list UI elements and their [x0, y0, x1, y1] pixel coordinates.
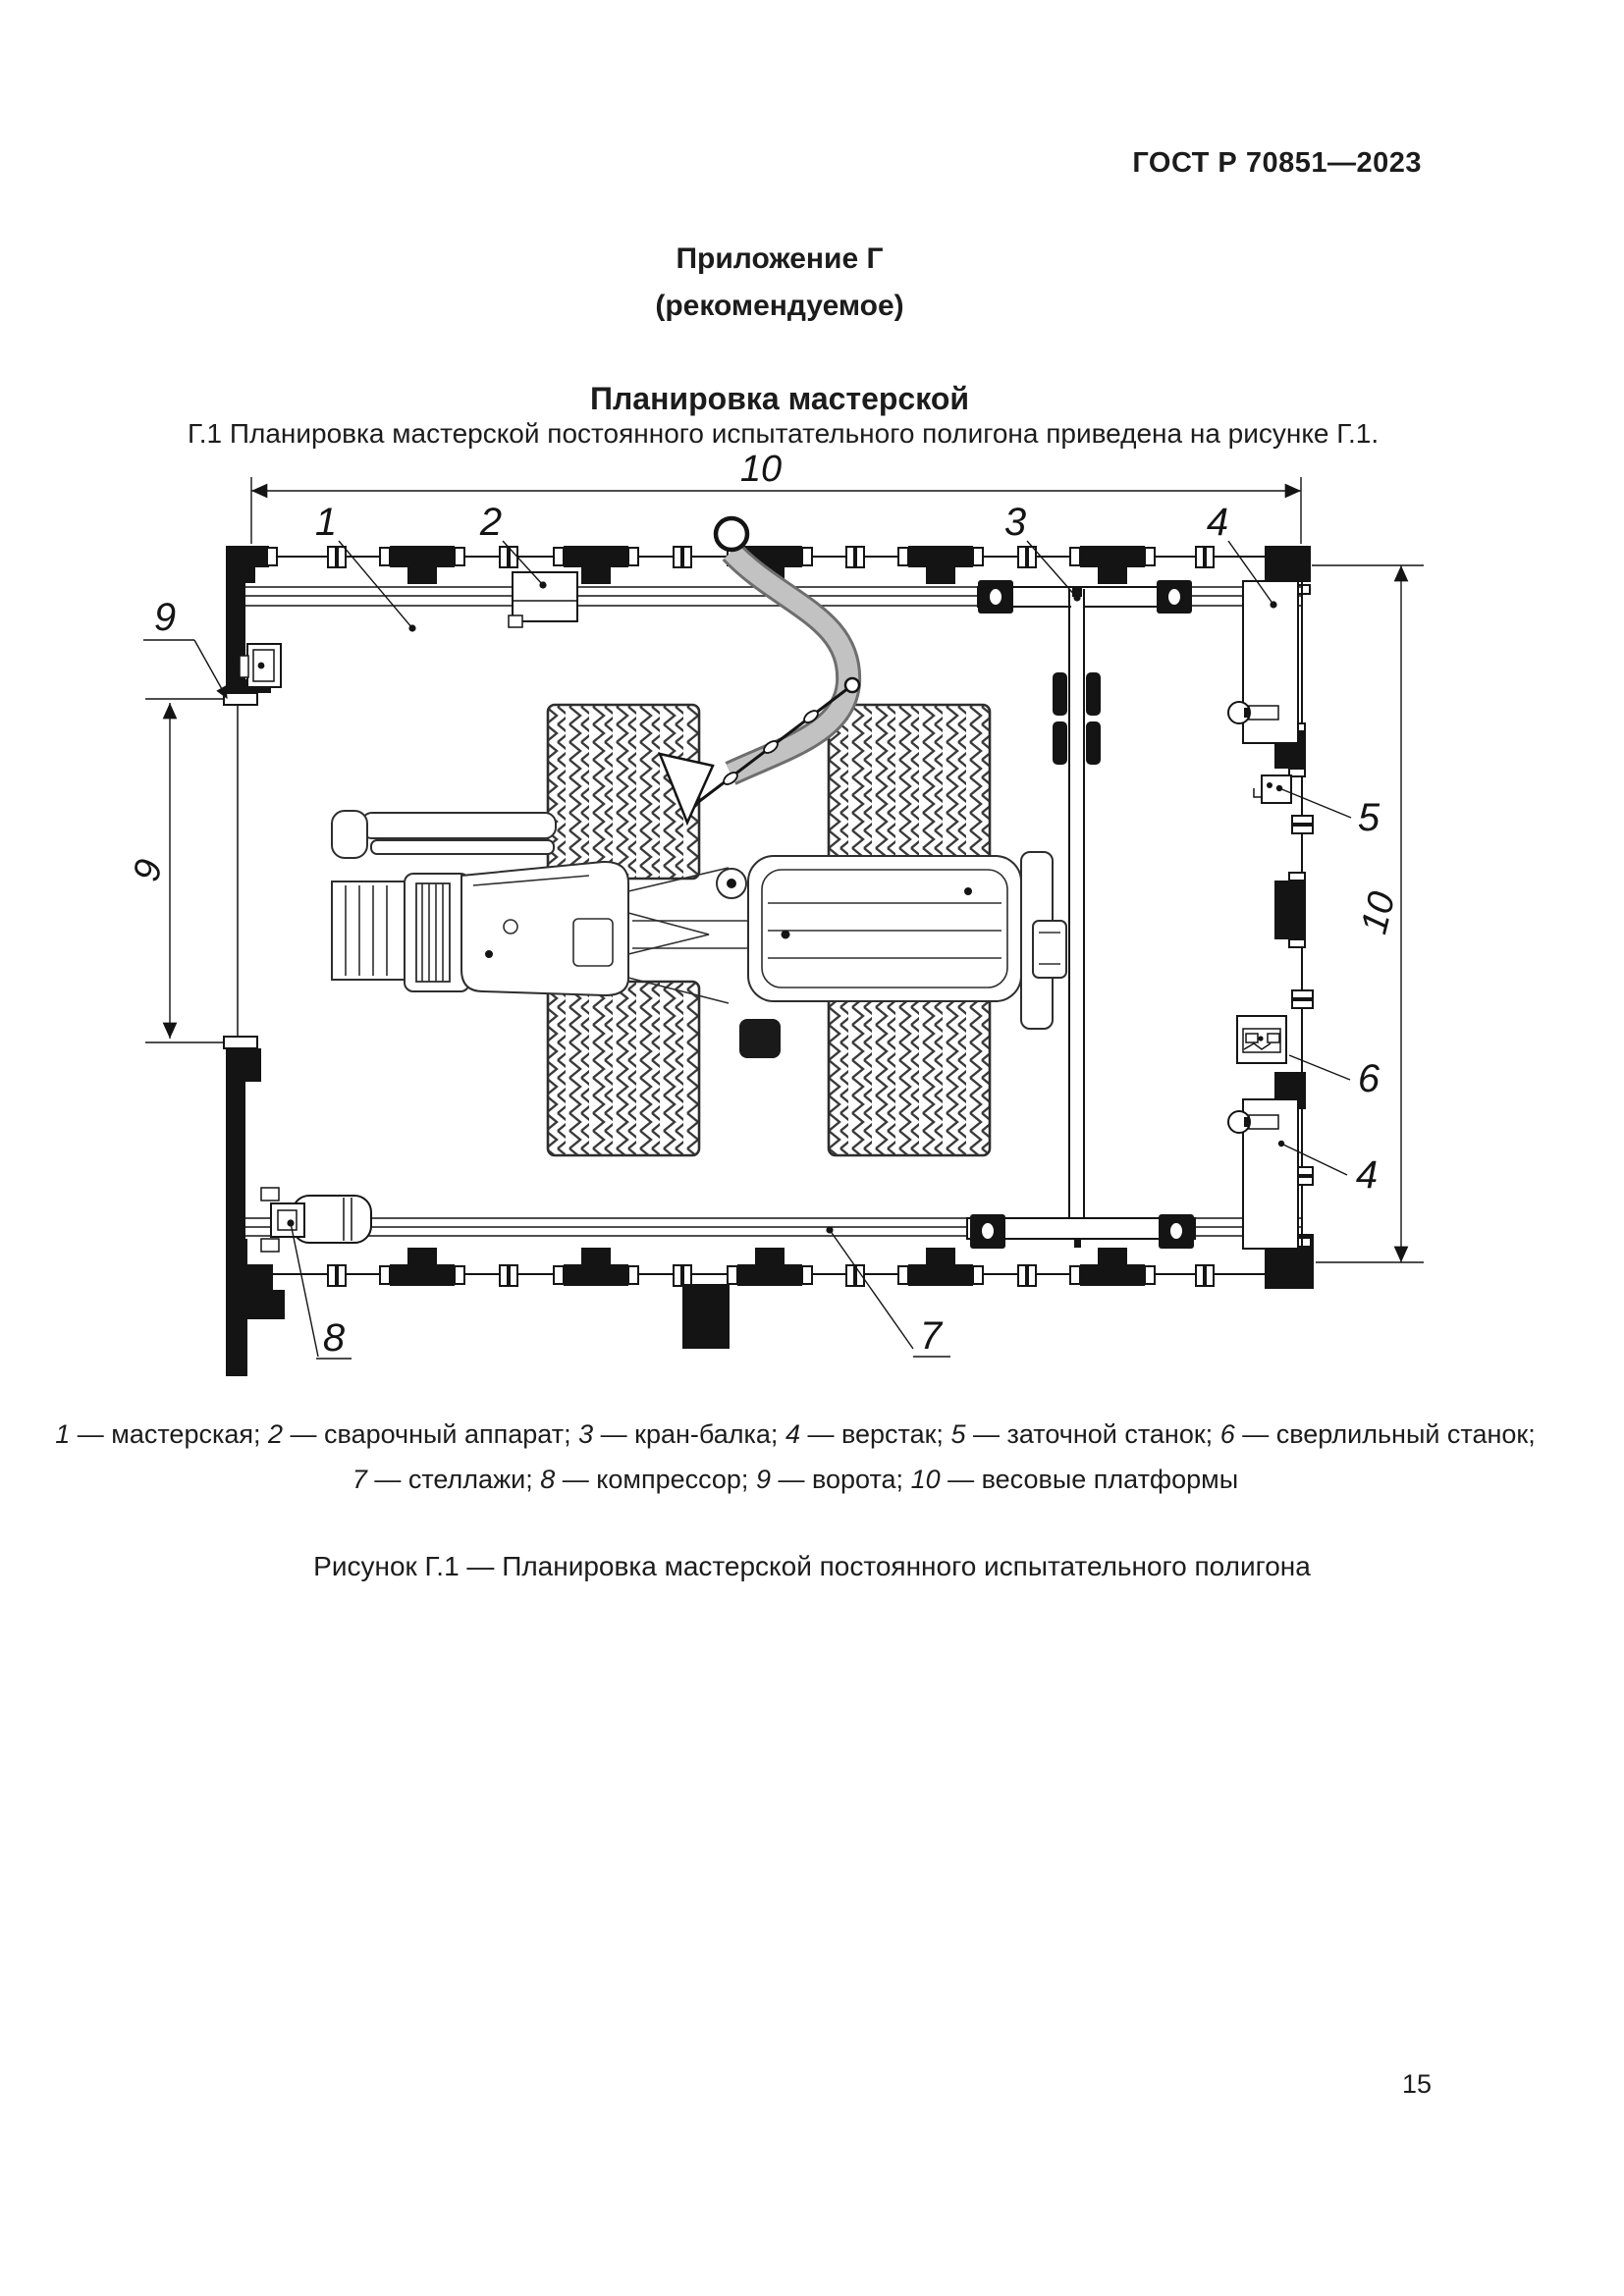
dimension-right-label: 10: [1354, 887, 1404, 937]
workbench-bottom: [1228, 1099, 1298, 1249]
bridge-girder: [1071, 589, 1083, 1239]
tire: [829, 705, 990, 879]
window-icon: [500, 547, 517, 567]
document-page: ГОСТ Р 70851—2023 Приложение Г (рекоменд…: [0, 0, 1624, 2296]
bottom-wall: [226, 1234, 1314, 1376]
window-icon: [674, 547, 691, 567]
window-icon: [1196, 1265, 1214, 1286]
dimension-gate-label: 9: [126, 855, 171, 885]
svg-text:4: 4: [1356, 1153, 1378, 1197]
gate-jamb-bottom: [224, 1037, 257, 1048]
svg-text:9: 9: [154, 596, 176, 639]
svg-text:6: 6: [1358, 1057, 1380, 1100]
page-number: 15: [1402, 2069, 1432, 2100]
vise-icon: [1228, 1111, 1278, 1133]
tire: [548, 982, 699, 1155]
svg-text:1: 1: [315, 501, 337, 544]
legend-line-2: 7 — стеллажи; 8 — компрессор; 9 — ворота…: [0, 1465, 1591, 1495]
svg-text:7: 7: [920, 1314, 944, 1358]
tractor-component: [739, 1019, 781, 1058]
tractor-hood: [748, 856, 1021, 1001]
radiator: [416, 883, 450, 982]
column: [1070, 1248, 1155, 1286]
column: [1070, 546, 1155, 584]
window-icon: [1196, 547, 1214, 567]
window-icon: [846, 547, 864, 567]
svg-text:8: 8: [323, 1316, 346, 1360]
column: [380, 546, 464, 584]
column: [554, 1248, 638, 1286]
welding-machine: [509, 572, 577, 627]
vise-icon: [1228, 702, 1278, 723]
window-icon: [328, 1265, 346, 1286]
window-icon: [1292, 816, 1313, 833]
corner-column-bottom-left: [226, 1239, 285, 1376]
dimension-top: 10: [251, 449, 1301, 544]
svg-text:5: 5: [1358, 796, 1380, 839]
window-icon: [1292, 990, 1313, 1008]
drilling-machine: [1237, 1016, 1286, 1063]
tractor-rear: [1021, 852, 1066, 1029]
dimension-gate: 9: [126, 699, 247, 1042]
column: [898, 546, 983, 584]
bottom-wall-columns: [380, 1248, 1155, 1286]
column: [898, 1248, 983, 1286]
compressor: [261, 1188, 371, 1252]
svg-text:4: 4: [1207, 501, 1228, 544]
callout-gate: 9: [143, 596, 227, 698]
tractor-exhaust: [332, 811, 556, 858]
svg-text:2: 2: [479, 501, 502, 544]
figure-caption: Рисунок Г.1 — Планировка мастерской пост…: [0, 1551, 1624, 1582]
sharpening-machine: [1254, 775, 1291, 803]
svg-text:3: 3: [1004, 501, 1026, 544]
hook-ring-icon: [716, 518, 747, 550]
window-icon: [328, 547, 346, 567]
window-icon: [674, 1265, 691, 1286]
legend-line-1: 1 — мастерская; 2 — сварочный аппарат; 3…: [0, 1419, 1591, 1450]
callout-shelving: 7: [826, 1226, 950, 1358]
floor-plan-figure: 10 10 9: [0, 0, 1624, 1414]
window-icon: [500, 1265, 517, 1286]
column: [728, 1248, 812, 1286]
tractor-front: [332, 874, 469, 991]
chain-ring-icon: [845, 678, 859, 692]
tire: [829, 982, 990, 1155]
column: [380, 1248, 464, 1286]
wall-pier: [682, 1284, 730, 1349]
dimension-top-label: 10: [740, 449, 782, 490]
window-icon: [1018, 547, 1036, 567]
gate-jamb-top: [224, 693, 257, 705]
tractor-cab: [461, 862, 628, 995]
window-icon: [1018, 1265, 1036, 1286]
